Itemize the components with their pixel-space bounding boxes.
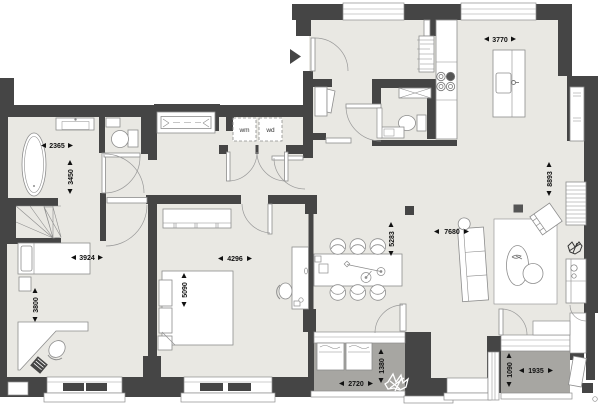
svg-text:7680: 7680 <box>444 229 460 236</box>
svg-text:2365: 2365 <box>49 143 65 150</box>
svg-text:4296: 4296 <box>227 256 243 263</box>
svg-text:1380: 1380 <box>379 358 386 374</box>
svg-text:2720: 2720 <box>348 381 364 388</box>
svg-text:5283: 5283 <box>389 231 396 247</box>
svg-text:3450: 3450 <box>68 169 75 185</box>
svg-text:1935: 1935 <box>528 368 544 375</box>
svg-text:5090: 5090 <box>182 282 189 298</box>
svg-text:wd: wd <box>265 127 275 134</box>
svg-text:1090: 1090 <box>507 362 514 378</box>
svg-text:wm: wm <box>238 127 249 134</box>
svg-text:3924: 3924 <box>79 255 95 262</box>
svg-text:8893: 8893 <box>547 171 554 187</box>
svg-text:3770: 3770 <box>492 37 508 44</box>
svg-text:3800: 3800 <box>33 297 40 313</box>
